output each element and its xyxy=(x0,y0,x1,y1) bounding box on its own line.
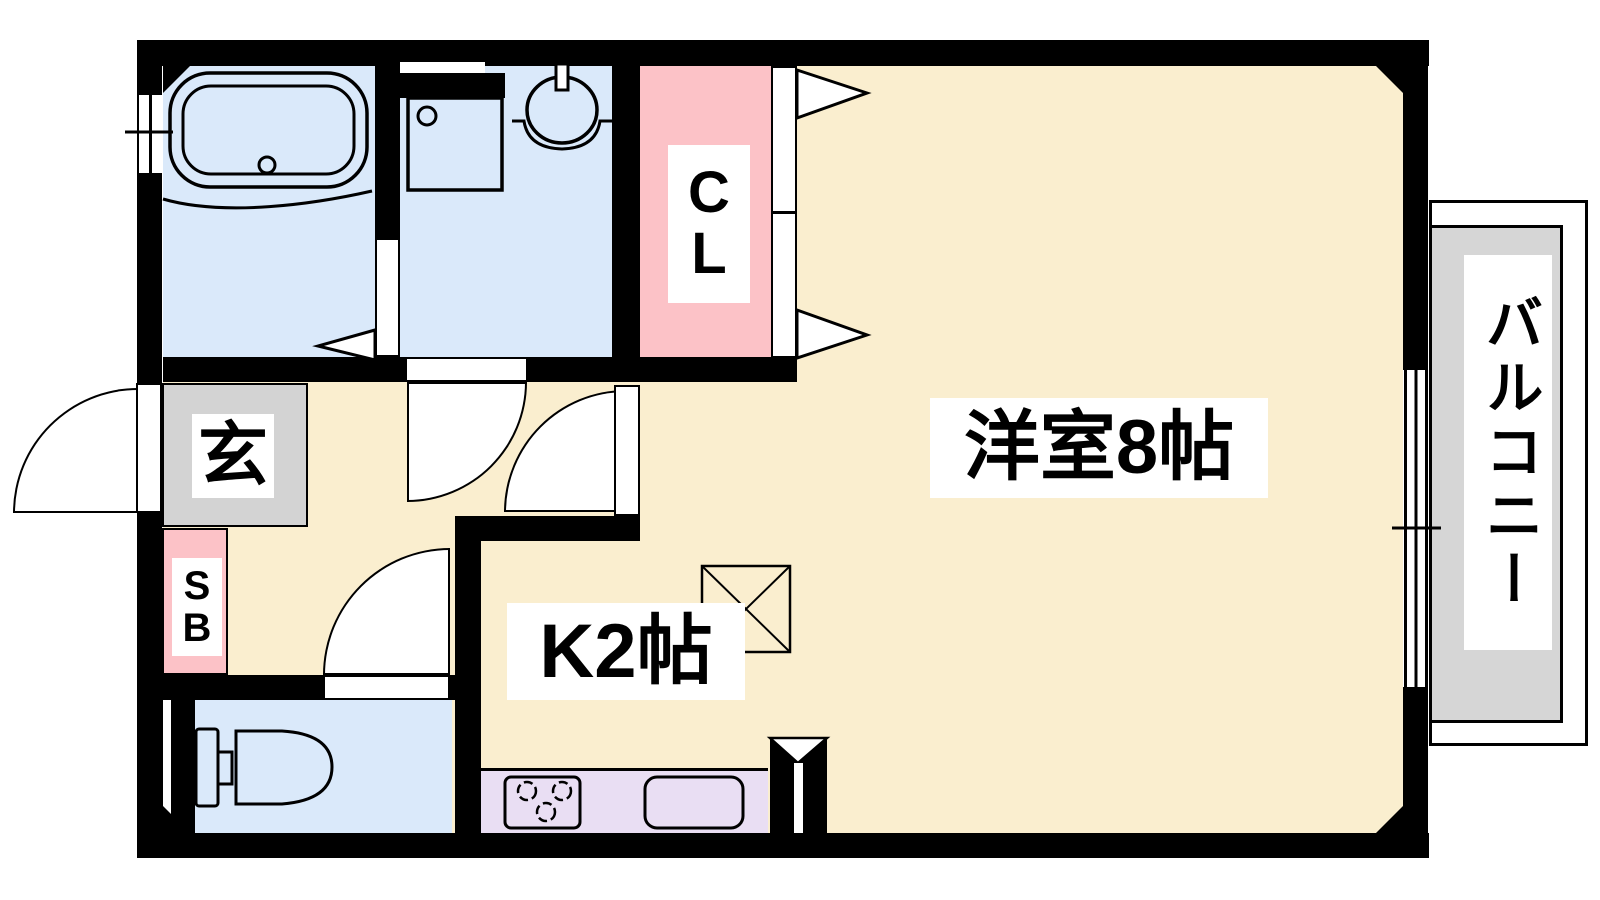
wall-under-washroom xyxy=(528,357,640,382)
balcony-window xyxy=(1403,370,1428,687)
wall-washroom-top-chunk xyxy=(400,73,505,98)
wall-under-bath xyxy=(163,357,405,382)
wall-kitchen-stub xyxy=(770,738,827,858)
closet-label: C L xyxy=(668,145,750,303)
bathroom-door xyxy=(375,238,400,357)
entrance-label: 玄 xyxy=(192,414,274,498)
entrance-door xyxy=(136,383,162,513)
washroom-window xyxy=(400,62,485,73)
closet-door-divider xyxy=(771,211,797,214)
wall-top xyxy=(137,40,1429,66)
floor-plan: 洋室8帖 K2帖 C L 玄 S B バルコニー xyxy=(0,0,1600,900)
balcony-label: バルコニー xyxy=(1464,255,1552,650)
toilet-door-opening xyxy=(323,675,450,700)
washroom-door-opening xyxy=(405,357,528,382)
wall-bath-washroom xyxy=(375,66,400,238)
hall-door xyxy=(614,385,640,516)
entrance-door-swing xyxy=(13,388,138,513)
toilet-floor xyxy=(195,700,452,833)
wall-toilet-top-right xyxy=(450,675,481,700)
shoe-box-label: S B xyxy=(172,558,222,656)
kitchen-counter xyxy=(480,768,768,833)
bathroom-window-pane-2 xyxy=(152,95,162,173)
wall-kitchen-top xyxy=(455,516,640,541)
wall-washroom-closet xyxy=(612,66,640,359)
kitchen-label: K2帖 xyxy=(507,603,745,700)
bathroom-floor xyxy=(163,66,375,357)
washroom-floor xyxy=(400,66,612,357)
wall-under-closet xyxy=(640,357,797,382)
toilet-window xyxy=(163,700,171,831)
western-room-label: 洋室8帖 xyxy=(930,398,1268,498)
bathroom-window-pane-1 xyxy=(139,95,149,173)
